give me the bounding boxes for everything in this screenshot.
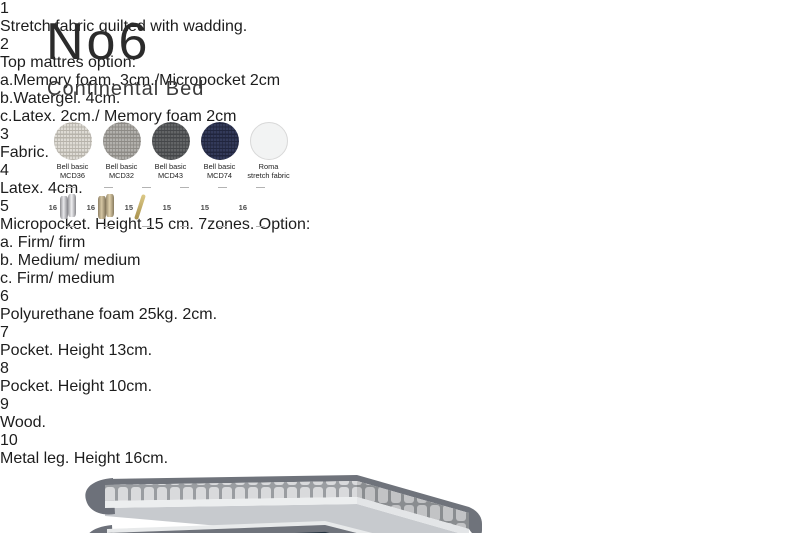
leg-height: 16 [236,203,247,212]
fabric-label: Roma stretch fabric [247,163,289,180]
leg-option: 16 [236,186,274,228]
fabric-label: Bell basic MCD36 [57,163,89,180]
fabric-label: Bell basic MCD74 [204,163,236,180]
item-subline: b. Medium/ medium [0,252,800,270]
leg-options: 16 16 15 15 15 16 [46,186,274,228]
item-sublines: a. Firm/ firm b. Medium/ medium c. Firm/… [0,234,800,288]
item-number-badge: 7 [0,324,800,342]
leg-option: 16 [84,186,122,228]
item-text: Wood. [0,414,800,432]
list-item: 6 Polyurethane foam 25kg. 2cm. [0,288,800,324]
fabric-swatch [201,122,239,160]
leg-icon [210,191,232,223]
item-text: Pocket. Height 10cm. [0,378,800,396]
fabric-code: MCD36 [57,172,89,181]
fabric-code: stretch fabric [247,172,289,181]
item-text: Metal leg. Height 16cm. [0,450,800,468]
list-item: 7 Pocket. Height 13cm. [0,324,800,360]
fabric-swatch [54,122,92,160]
fabric-options: Bell basic MCD36 Bell basic MCD32 Bell b… [51,122,290,180]
leg-option: 15 [160,186,198,228]
fabric-option: Bell basic MCD74 [198,122,241,180]
item-number-badge: 8 [0,360,800,378]
diagram-panel: 10 6 6 [0,468,800,533]
fabric-swatch [103,122,141,160]
leg-icon [58,191,80,223]
item-subline: c. Firm/ medium [0,270,800,288]
fabric-label: Bell basic MCD43 [155,163,187,180]
item-subline: a. Firm/ firm [0,234,800,252]
leg-height: 15 [122,203,133,212]
leg-icon [96,191,118,223]
leg-option: 15 [198,186,236,228]
fabric-swatch [152,122,190,160]
fabric-option: Bell basic MCD43 [149,122,192,180]
fabric-swatch [250,122,288,160]
leg-option: 16 [46,186,84,228]
fabric-option: Bell basic MCD32 [100,122,143,180]
leg-height: 15 [198,203,209,212]
leg-icon [172,191,194,223]
leg-height: 16 [84,203,95,212]
fabric-label: Bell basic MCD32 [106,163,138,180]
list-item: 8 Pocket. Height 10cm. [0,360,800,396]
fabric-code: MCD74 [204,172,236,181]
fabric-code: MCD43 [155,172,187,181]
page-subtitle: Continental Bed [47,78,204,101]
leg-height: 15 [160,203,171,212]
item-number-badge: 10 [0,432,800,450]
fabric-option: Roma stretch fabric [247,122,290,180]
leg-height: 16 [46,203,57,212]
list-item: 10 Metal leg. Height 16cm. [0,432,800,468]
leg-option: 15 [122,186,160,228]
item-text: Pocket. Height 13cm. [0,342,800,360]
item-text: Polyurethane foam 25kg. 2cm. [0,306,800,324]
item-number-badge: 6 [0,288,800,306]
list-item: 9 Wood. [0,396,800,432]
leg-icon [248,191,270,223]
fabric-code: MCD32 [106,172,138,181]
fabric-option: Bell basic MCD36 [51,122,94,180]
item-number-badge: 9 [0,396,800,414]
leg-icon [134,191,156,223]
page-title: No6 [46,16,150,68]
page: No6 Continental Bed Bell basic MCD36 Bel… [0,0,800,533]
bed-illustration [0,468,507,533]
